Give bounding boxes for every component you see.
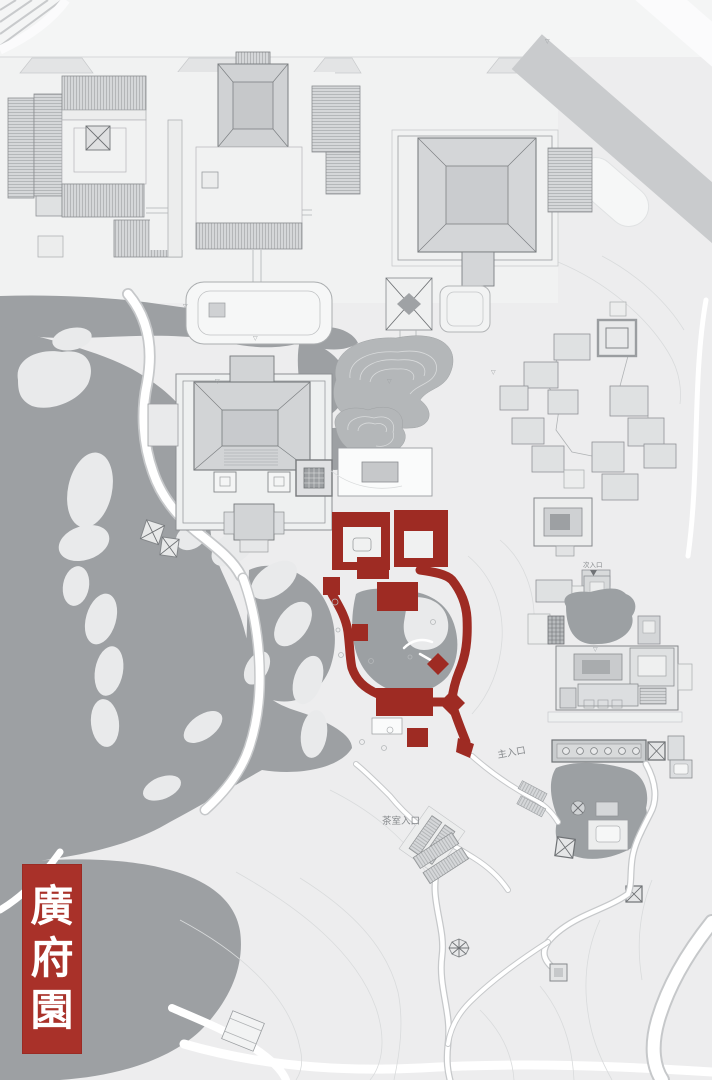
elevation-marker: ▽ (491, 370, 496, 376)
elevation-marker: ▽ (127, 376, 132, 382)
plaza-pond (186, 282, 332, 344)
title-char: 園 (31, 990, 74, 1033)
main-hall-roof (194, 382, 310, 470)
elevation-marker: ▽ (253, 336, 258, 342)
corner-pavilion (296, 460, 332, 496)
white-court-building (338, 448, 432, 496)
elevation-marker: ▽ (183, 304, 188, 310)
corridor-pavilion-icon (648, 742, 665, 760)
elevation-marker: ▽ (593, 647, 598, 653)
elevation-marker: ▽ (215, 379, 220, 385)
garden-title-badge: 廣 府 園 (22, 864, 82, 1054)
column-grid-hall (548, 616, 564, 644)
tea-entrance-label: 茶室入口 (382, 815, 420, 827)
double-square-pavilion (598, 320, 636, 356)
pond-pavilion-icon (555, 837, 575, 858)
elevation-marker: ▽ (387, 379, 392, 385)
round-pavilion (440, 286, 490, 332)
map-canvas: 主入口 茶室入口 次入口 ▽ ▽ ▽ ▽ ▽ ▽ ▽ ▽ ▽ (0, 0, 712, 1080)
title-char: 府 (31, 938, 74, 981)
trail-pavilion-icon (550, 964, 567, 981)
pagoda-hall (218, 52, 288, 147)
elevation-marker: ▽ (121, 304, 126, 310)
courtyard-pavilion-icon (86, 126, 110, 150)
site-plan: 主入口 茶室入口 次入口 ▽ ▽ ▽ ▽ ▽ ▽ ▽ ▽ ▽ 廣 府 園 (0, 0, 712, 1080)
central-courtyard-complex (148, 356, 332, 552)
title-char: 廣 (31, 886, 74, 929)
elevation-marker: ▽ (545, 39, 550, 45)
secondary-entrance-label: 次入口 (583, 560, 603, 569)
gazebo-icon (449, 939, 469, 957)
